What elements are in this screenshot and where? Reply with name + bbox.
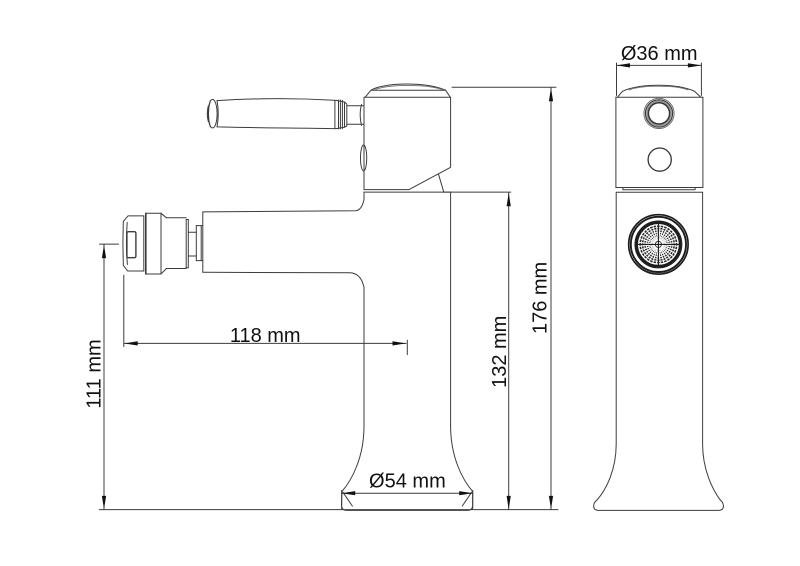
svg-text:132 mm: 132 mm bbox=[489, 316, 511, 388]
svg-text:118 mm: 118 mm bbox=[230, 325, 301, 347]
svg-text:176 mm: 176 mm bbox=[529, 262, 551, 334]
svg-text:111 mm: 111 mm bbox=[84, 339, 106, 408]
svg-text:Ø36 mm: Ø36 mm bbox=[621, 43, 698, 65]
svg-text:Ø54 mm: Ø54 mm bbox=[369, 471, 446, 493]
